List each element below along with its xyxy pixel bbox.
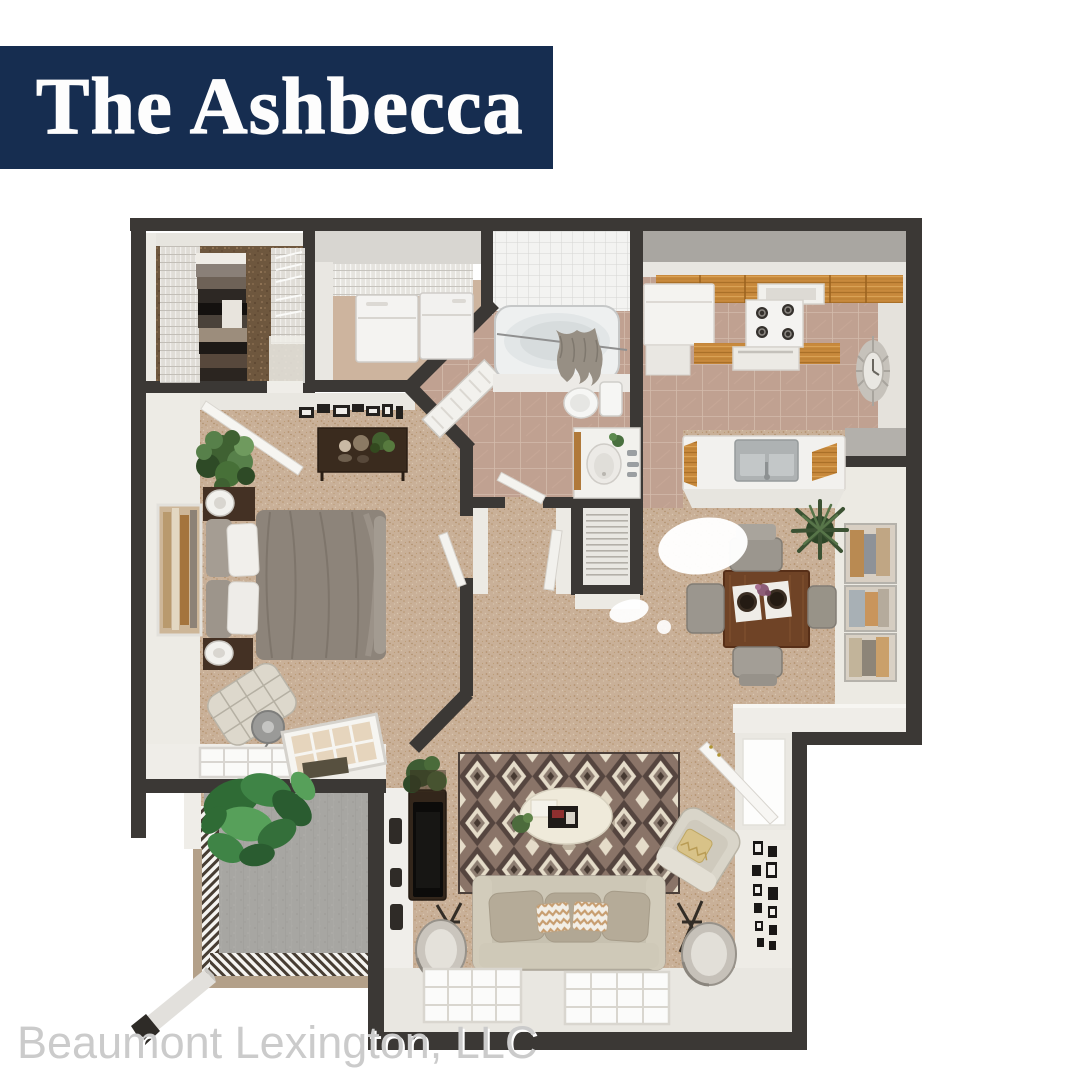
svg-text:The Ashbecca: The Ashbecca bbox=[36, 63, 524, 151]
svg-text:Beaumont Lexington, LLC: Beaumont Lexington, LLC bbox=[17, 1017, 537, 1068]
